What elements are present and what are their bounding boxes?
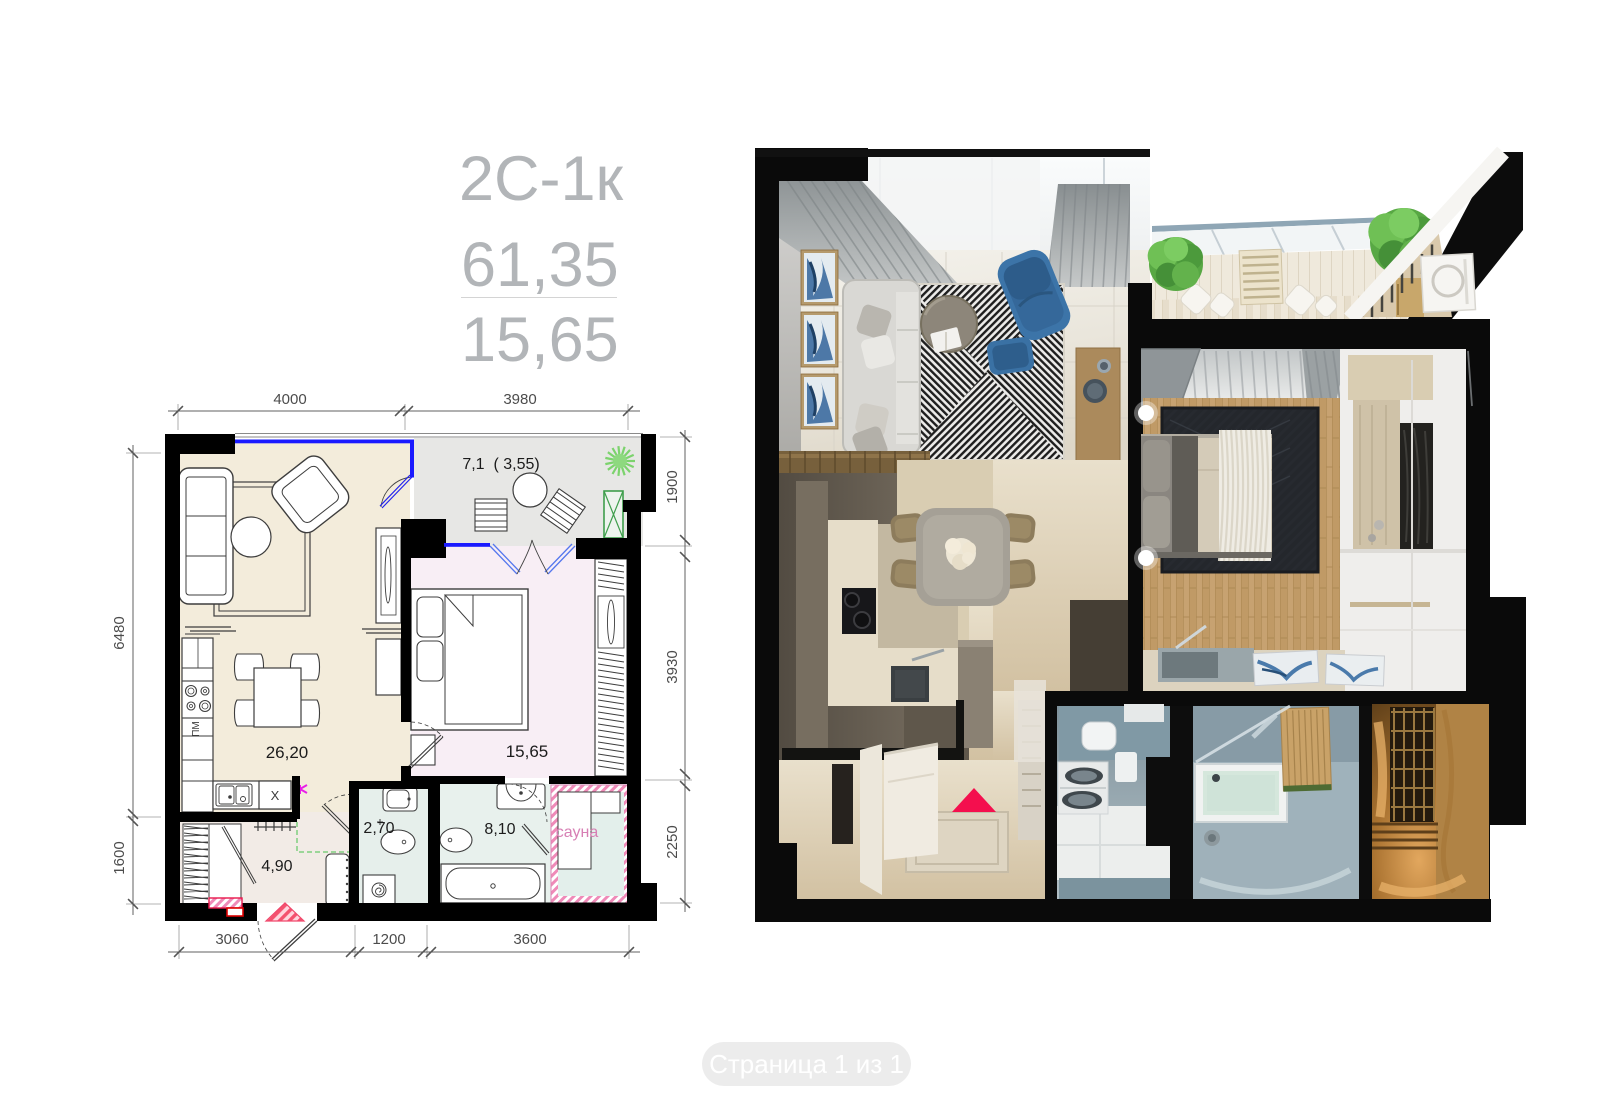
svg-text:3980: 3980 (503, 391, 536, 408)
svg-text:1600: 1600 (111, 841, 128, 874)
svg-text:2250: 2250 (664, 825, 681, 858)
svg-text:7,1 ( 3,55): 7,1 ( 3,55) (462, 456, 539, 473)
svg-text:сауна: сауна (556, 824, 599, 841)
svg-text:ПМ: ПМ (191, 721, 202, 737)
svg-text:26,20: 26,20 (266, 743, 309, 762)
svg-text:1900: 1900 (664, 470, 681, 503)
svg-text:15,65: 15,65 (506, 742, 549, 761)
svg-text:1200: 1200 (372, 931, 405, 948)
svg-text:4,90: 4,90 (261, 858, 292, 875)
svg-text:3060: 3060 (215, 931, 248, 948)
svg-text:8,10: 8,10 (484, 821, 515, 838)
svg-text:3930: 3930 (664, 650, 681, 683)
svg-text:X: X (271, 788, 280, 803)
svg-text:2,70: 2,70 (363, 820, 394, 837)
svg-text:6480: 6480 (111, 616, 128, 649)
svg-text:4000: 4000 (273, 391, 306, 408)
svg-text:3600: 3600 (513, 931, 546, 948)
